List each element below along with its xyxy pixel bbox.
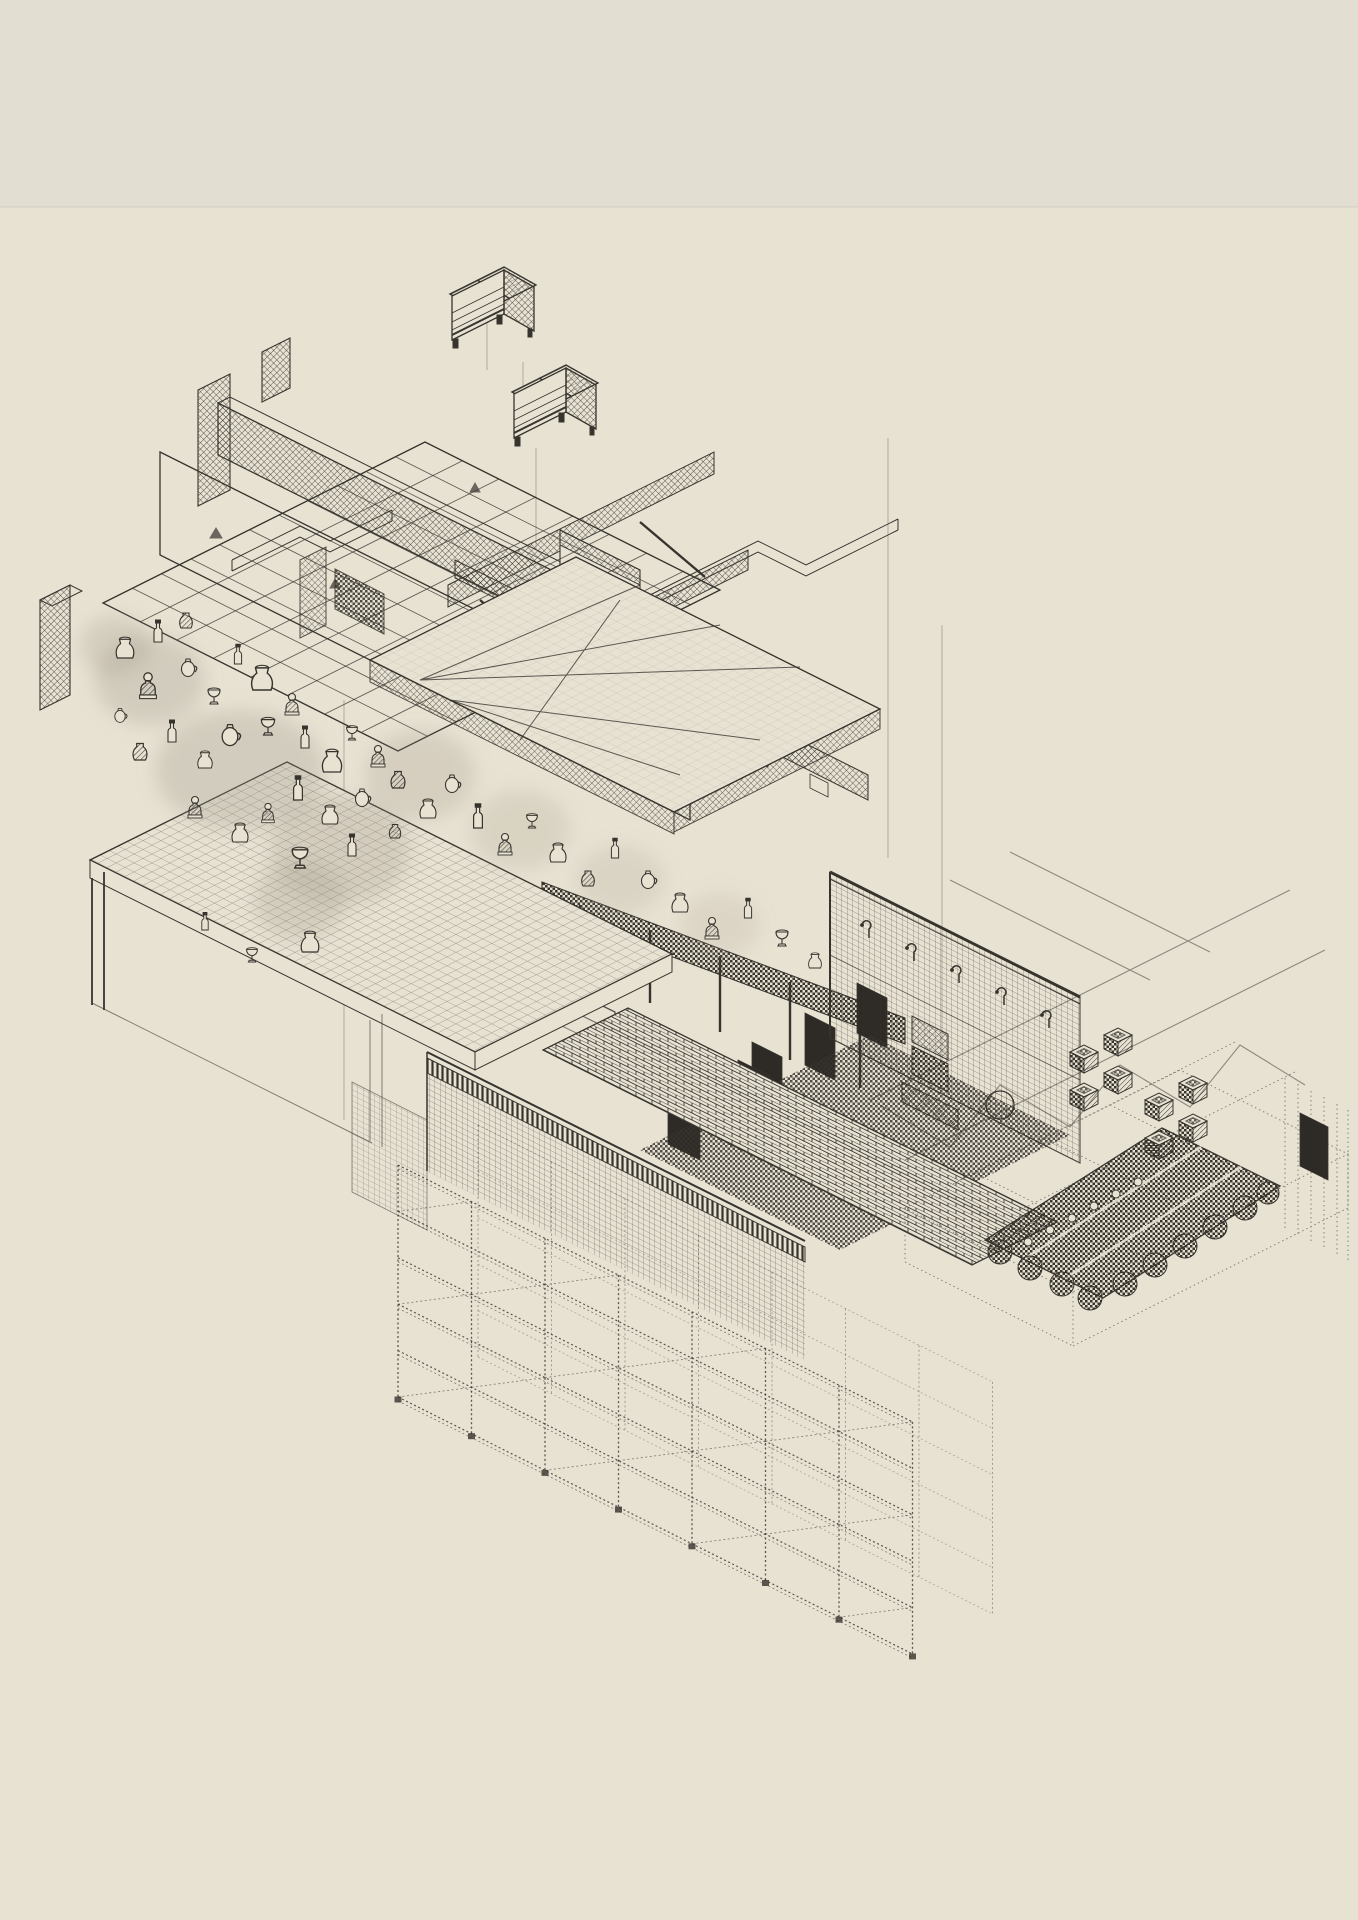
artifact [234, 644, 241, 664]
artifact [294, 776, 303, 800]
artifact [154, 620, 162, 642]
drawing-sheet: dumpster-upper [0, 0, 1358, 1920]
artifact [348, 834, 356, 856]
artifact [611, 838, 618, 858]
paper-background [0, 0, 1358, 1920]
artifact [301, 726, 309, 748]
artifact [202, 912, 208, 930]
artifact [474, 804, 483, 828]
pilaster [198, 374, 230, 506]
pilaster [40, 585, 70, 710]
rack-foot [910, 1654, 916, 1659]
artifact [744, 898, 751, 918]
artifact [168, 720, 176, 742]
paper-top-strip [0, 0, 1358, 207]
